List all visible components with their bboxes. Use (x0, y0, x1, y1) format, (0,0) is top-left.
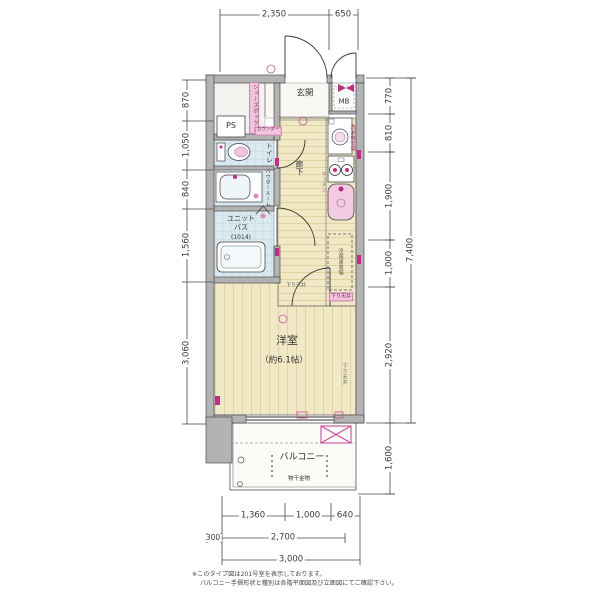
hallway-label: 廊下 (295, 160, 303, 176)
dim-left-840: 840 (183, 179, 192, 199)
vanity-fixture (216, 172, 262, 202)
unit-bath-label: ユニット (227, 215, 255, 222)
dim-bottom-3000: 3,000 (277, 556, 305, 565)
room-size-label: （約6.1帖） (260, 357, 308, 366)
entrance-door-arc (285, 36, 327, 78)
dim-right-1000: 1,000 (386, 249, 395, 277)
dim-right-770: 770 (386, 86, 395, 106)
switch-icon (275, 158, 279, 166)
room-label: 洋室 (276, 335, 298, 347)
dim-left-1050: 1,050 (183, 131, 192, 159)
footnote-line1: ※このタイプ図は201号室を表示しております。 (192, 569, 326, 578)
outer-wall-block (206, 417, 232, 463)
unit-bath-label2: バス (234, 224, 248, 231)
balcony-window (246, 417, 334, 420)
dim-top-650: 650 (333, 11, 353, 20)
floor-plan-page: 2,350 650 870 1,050 840 1,560 3,060 770 … (0, 0, 600, 600)
switch-icon (357, 150, 361, 159)
fridge-label: 冷蔵庫置場 (337, 248, 342, 276)
shower-icon (261, 214, 266, 219)
powder-room-label: パウダールーム (264, 169, 269, 208)
dim-bottom-300: 300 (204, 534, 222, 542)
switch-icon (357, 255, 361, 264)
dim-right-2920: 2,920 (386, 341, 395, 369)
toilet-fixture (217, 143, 250, 161)
marker-circle-icon (267, 65, 275, 73)
washer-label: 洗濯機置場 (349, 124, 354, 152)
soffit-label-box: 下り天井 (329, 292, 353, 301)
dim-bottom-2700: 2,700 (269, 534, 297, 543)
dim-right-810: 810 (386, 123, 395, 143)
stove-fixture (328, 156, 354, 182)
dim-right-1600: 1,600 (386, 444, 395, 472)
dim-top-2350: 2,350 (260, 11, 288, 20)
switch-icon (275, 248, 279, 256)
sink-fixture (328, 184, 354, 220)
soffit-label-side: 下り天井 (341, 363, 346, 385)
dim-left-870: 870 (183, 90, 192, 110)
unit-bath-size: (1014) (231, 235, 251, 241)
mb-door-arc (331, 53, 356, 78)
footnote-line2: バルコニー手摺形状と種別は各階平面図及び立面図にてご確認下さい。 (200, 578, 398, 587)
genkan-label: 玄関 (296, 90, 313, 99)
dim-bottom-640: 640 (335, 512, 355, 521)
dim-left-1560: 1,560 (183, 231, 192, 259)
mb-label: MB (339, 98, 350, 105)
counter-label: カウンター (255, 127, 282, 136)
dim-right-7400: 7,400 (407, 236, 416, 264)
ps-label: PS (226, 122, 236, 130)
soffit-label-top: 下り天井 (286, 283, 306, 288)
kitchen-label: キッチン (320, 171, 325, 193)
laundry-label: 物干金物 (288, 477, 310, 483)
dim-bottom-1360: 1,360 (239, 512, 267, 521)
dim-bottom-1000: 1,000 (294, 512, 322, 521)
dim-left-3060: 3,060 (183, 339, 192, 367)
balcony-label: バルコニー (280, 453, 325, 462)
dim-right-1900: 1,900 (386, 182, 395, 210)
toilet-label: トイレ (265, 143, 272, 164)
switch-icon (215, 396, 220, 405)
